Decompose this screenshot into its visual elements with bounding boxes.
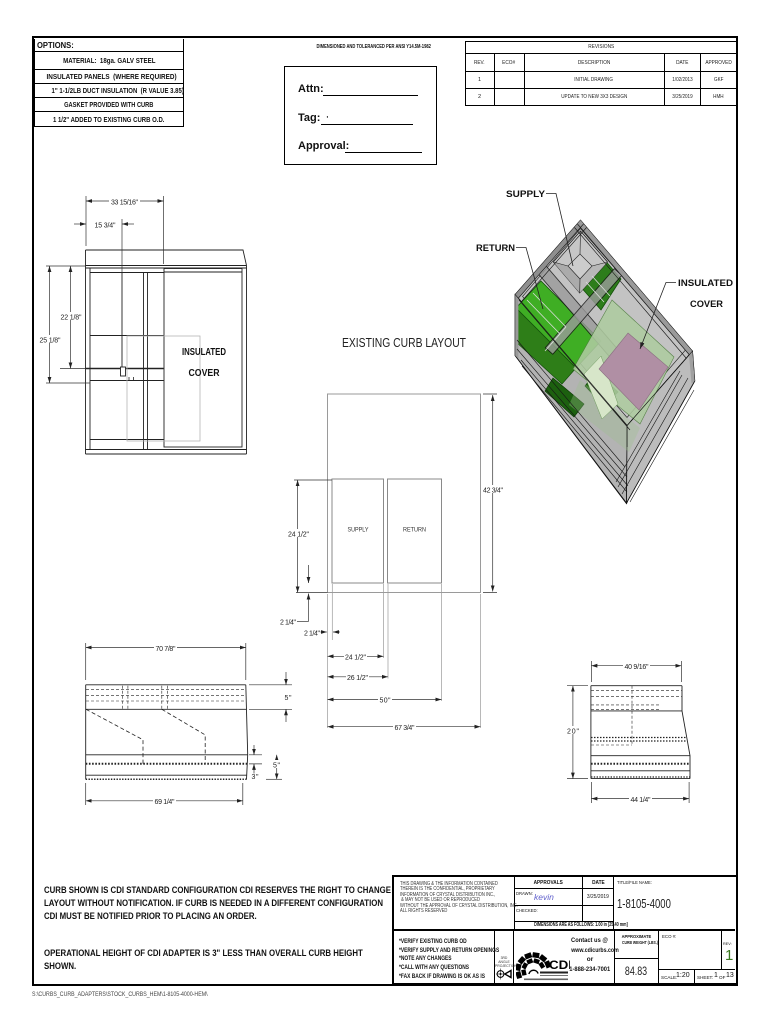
svg-text:40 9/16": 40 9/16"	[625, 664, 650, 671]
svg-text:24 1/2": 24 1/2"	[345, 654, 367, 661]
svg-text:67 3/4": 67 3/4"	[395, 725, 416, 732]
svg-text:33 15/16": 33 15/16"	[111, 199, 139, 206]
svg-text:24 1/2": 24 1/2"	[288, 531, 310, 538]
svg-text:SUPPLY: SUPPLY	[348, 527, 370, 534]
svg-text:RETURN: RETURN	[476, 243, 515, 254]
svg-text:42 3/4": 42 3/4"	[483, 487, 504, 494]
svg-text:5": 5"	[273, 762, 281, 769]
svg-text:5": 5"	[285, 695, 293, 702]
svg-text:COVER: COVER	[690, 299, 723, 310]
svg-text:69 1/4": 69 1/4"	[155, 799, 176, 806]
svg-text:3": 3"	[252, 774, 260, 781]
svg-text:70 7/8": 70 7/8"	[156, 646, 177, 653]
svg-text:26 1/2": 26 1/2"	[347, 675, 369, 682]
svg-text:INSULATED: INSULATED	[182, 347, 226, 358]
svg-text:RETURN: RETURN	[403, 527, 426, 534]
svg-text:EXISTING CURB LAYOUT: EXISTING CURB LAYOUT	[342, 335, 466, 350]
svg-text:INSULATED: INSULATED	[678, 278, 733, 289]
svg-text:2 1/4": 2 1/4"	[280, 620, 297, 627]
svg-text:COVER: COVER	[189, 368, 221, 379]
svg-text:50": 50"	[380, 698, 392, 705]
svg-text:25 1/8": 25 1/8"	[40, 337, 62, 344]
svg-text:SUPPLY: SUPPLY	[506, 189, 546, 200]
svg-text:20": 20"	[567, 728, 580, 735]
svg-text:44 1/4": 44 1/4"	[631, 797, 652, 804]
svg-text:15 3/4": 15 3/4"	[95, 222, 117, 229]
svg-text:2 1/4": 2 1/4"	[304, 630, 321, 637]
svg-text:22 1/8": 22 1/8"	[61, 314, 83, 321]
